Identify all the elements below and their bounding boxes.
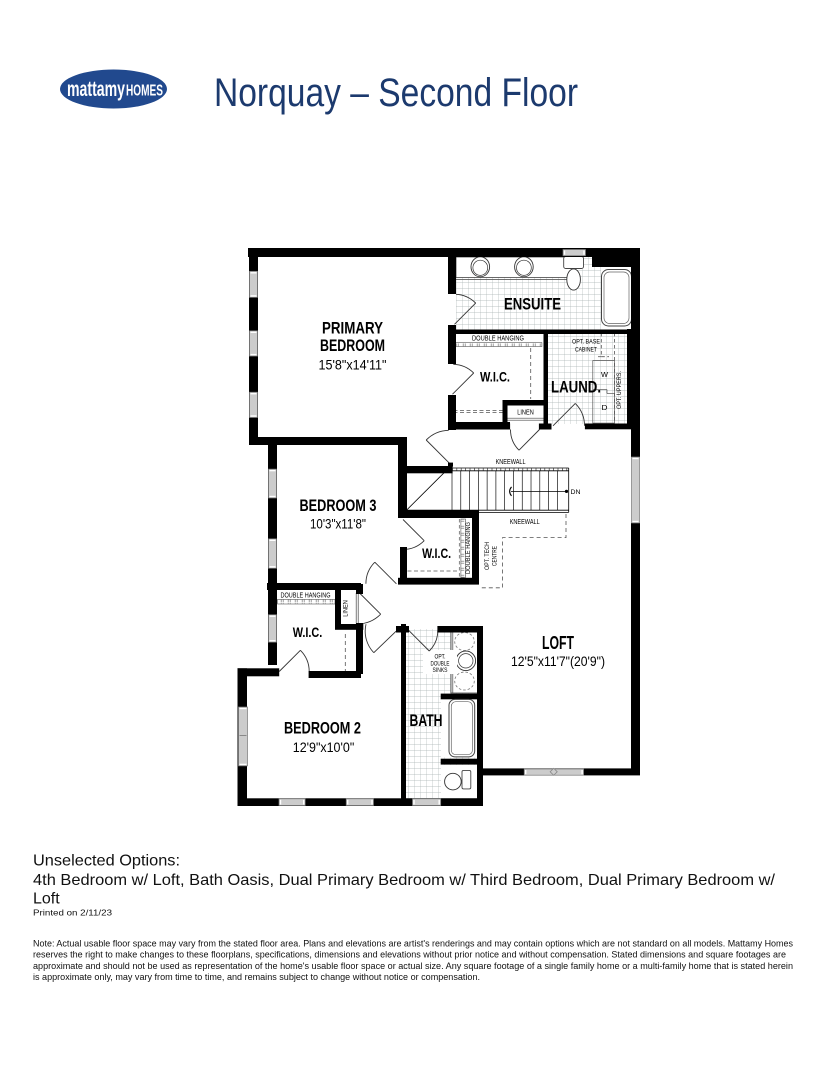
svg-text:LINEN: LINEN xyxy=(343,600,350,617)
svg-text:BEDROOM 2: BEDROOM 2 xyxy=(284,720,361,738)
svg-text:is approximate only, may vary: is approximate only, may vary from time … xyxy=(33,972,480,982)
svg-text:LINEN: LINEN xyxy=(517,410,534,417)
svg-text:ENSUITE: ENSUITE xyxy=(504,295,561,314)
svg-text:D: D xyxy=(602,403,609,412)
svg-text:mattamy: mattamy xyxy=(67,78,125,101)
svg-text:W.I.C.: W.I.C. xyxy=(480,369,510,385)
svg-text:approximate and should not be: approximate and should not be used as re… xyxy=(33,961,793,971)
svg-text:DOUBLE HANGING: DOUBLE HANGING xyxy=(281,592,331,599)
svg-text:BATH: BATH xyxy=(410,712,443,730)
svg-text:BEDROOM: BEDROOM xyxy=(320,337,385,355)
svg-text:OPT. UPPERS.: OPT. UPPERS. xyxy=(616,371,623,409)
svg-text:DOUBLE HANGING: DOUBLE HANGING xyxy=(472,336,524,343)
svg-text:12'5"x11'7"(20'9"): 12'5"x11'7"(20'9") xyxy=(511,653,605,669)
svg-text:15'8"x14'11": 15'8"x14'11" xyxy=(319,358,387,373)
svg-text:LOFT: LOFT xyxy=(542,633,574,653)
svg-text:KNEEWALL: KNEEWALL xyxy=(510,519,540,526)
svg-text:DOUBLE HANGING: DOUBLE HANGING xyxy=(465,522,472,574)
svg-text:LAUND.: LAUND. xyxy=(551,379,601,397)
svg-text:CENTRE: CENTRE xyxy=(492,546,499,566)
svg-text:CABINET: CABINET xyxy=(575,346,597,353)
svg-text:HOMES: HOMES xyxy=(126,83,163,100)
svg-text:OPT. TECH: OPT. TECH xyxy=(484,542,491,570)
svg-text:KNEEWALL: KNEEWALL xyxy=(496,459,526,466)
svg-text:Loft: Loft xyxy=(33,891,60,908)
svg-text:W: W xyxy=(601,370,609,379)
svg-text:SINKS: SINKS xyxy=(433,667,449,674)
svg-text:Note: Actual usable floor spac: Note: Actual usable floor space may vary… xyxy=(33,939,794,949)
svg-text:BEDROOM 3: BEDROOM 3 xyxy=(300,497,377,515)
svg-text:OPT. BASE: OPT. BASE xyxy=(572,339,601,346)
svg-text:DN: DN xyxy=(571,489,581,496)
svg-text:PRIMARY: PRIMARY xyxy=(322,320,383,338)
svg-text:Unselected Options:: Unselected Options: xyxy=(33,853,180,870)
svg-text:10'3"x11'8": 10'3"x11'8" xyxy=(310,517,366,532)
svg-text:W.I.C.: W.I.C. xyxy=(293,625,323,640)
svg-text:W.I.C.: W.I.C. xyxy=(422,546,451,561)
svg-text:12'9"x10'0": 12'9"x10'0" xyxy=(293,740,355,755)
svg-text:reserves the right to make cha: reserves the right to make changes to th… xyxy=(33,950,786,960)
svg-text:Norquay – Second Floor: Norquay – Second Floor xyxy=(214,71,578,115)
svg-text:Printed on 2/11/23: Printed on 2/11/23 xyxy=(33,908,112,918)
svg-text:4th Bedroom w/ Loft, Bath Oasi: 4th Bedroom w/ Loft, Bath Oasis, Dual Pr… xyxy=(33,872,776,889)
